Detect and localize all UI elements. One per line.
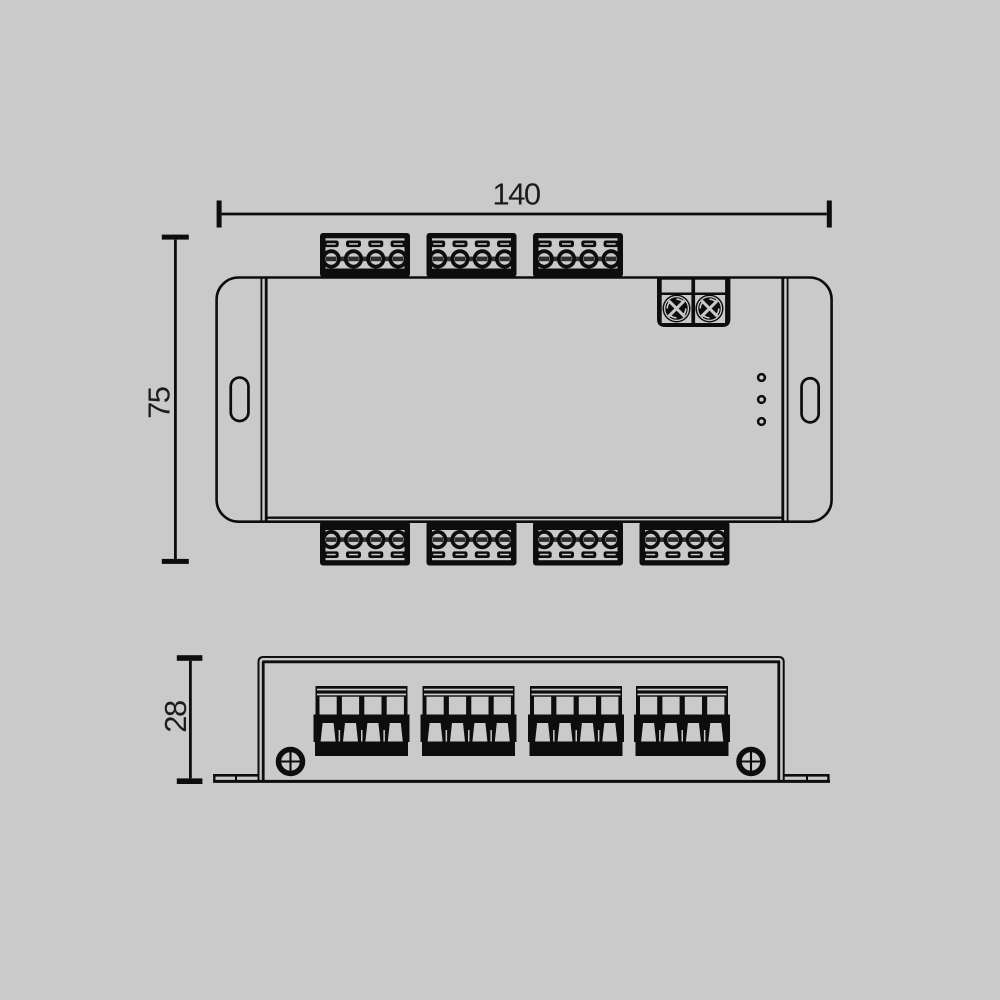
svg-text:28: 28 — [158, 701, 193, 733]
svg-text:75: 75 — [142, 387, 177, 419]
svg-text:140: 140 — [492, 177, 540, 212]
